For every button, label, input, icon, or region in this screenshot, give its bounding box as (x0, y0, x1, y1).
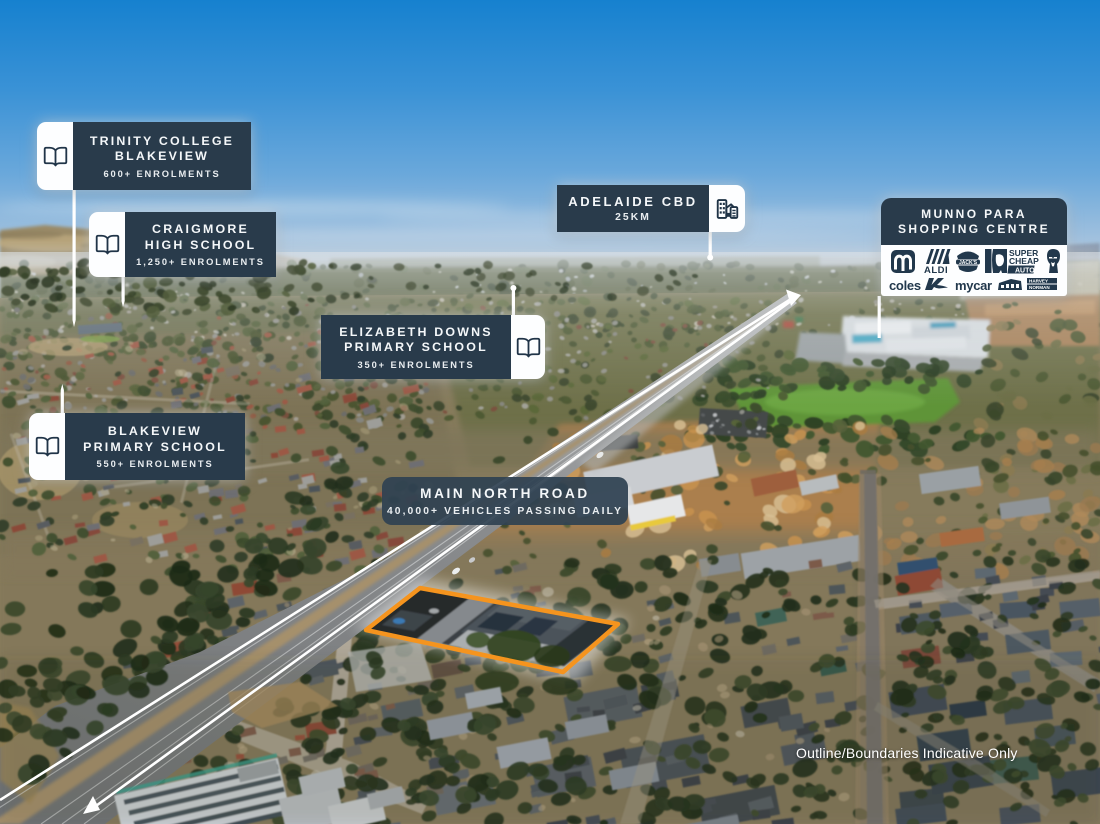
svg-text:CHEAP: CHEAP (1009, 256, 1039, 266)
svg-text:HARVEY: HARVEY (1029, 278, 1048, 283)
svg-text:JACK'S: JACK'S (959, 260, 978, 266)
svg-text:coles: coles (889, 278, 921, 293)
svg-text:NORMAN: NORMAN (1029, 285, 1050, 290)
svg-text:mycar: mycar (955, 278, 992, 293)
svg-text:AUTO: AUTO (1015, 267, 1035, 274)
svg-text:ALDI: ALDI (924, 265, 948, 276)
